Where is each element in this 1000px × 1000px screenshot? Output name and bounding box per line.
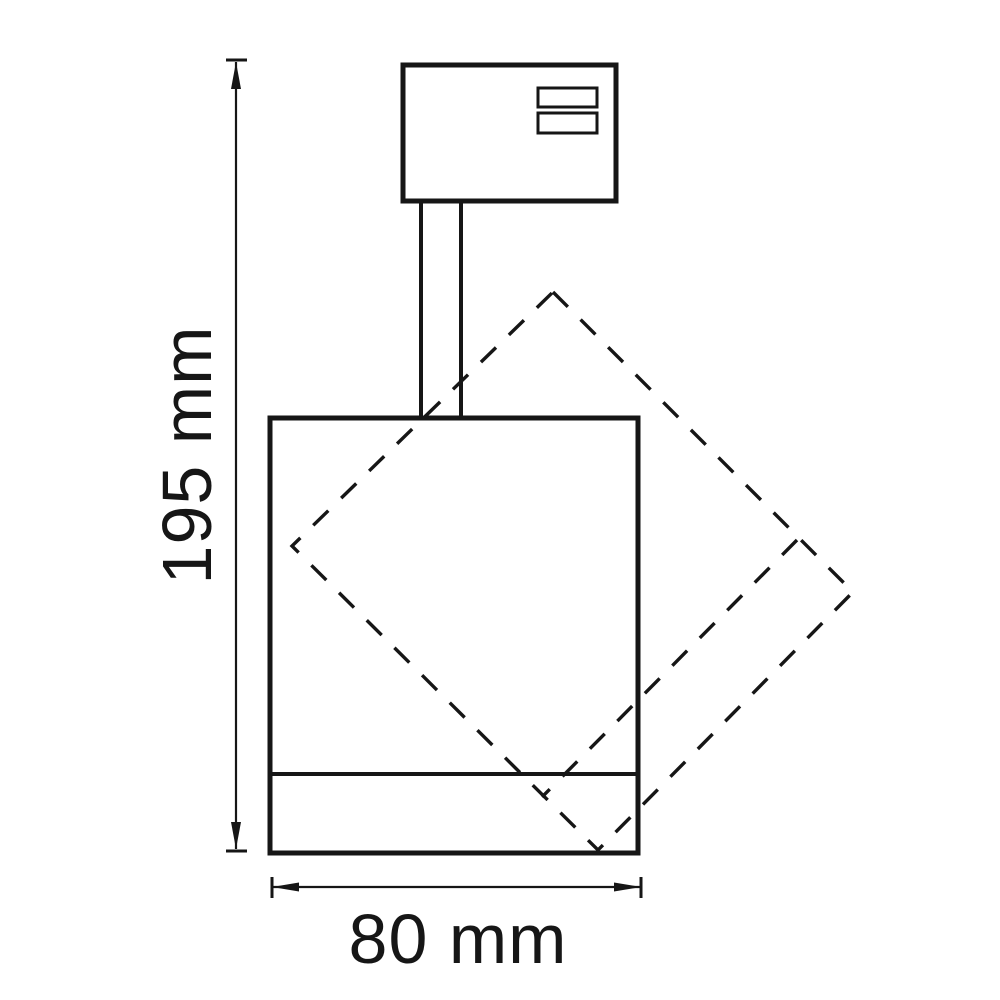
- height-dimension-label: 195 mm: [148, 326, 226, 585]
- lamp-body: [270, 418, 638, 853]
- width-dimension-label: 80 mm: [349, 900, 568, 978]
- drawing-svg: 195 mm 80 mm: [0, 0, 1000, 1000]
- dimension-drawing: 195 mm 80 mm: [0, 0, 1000, 1000]
